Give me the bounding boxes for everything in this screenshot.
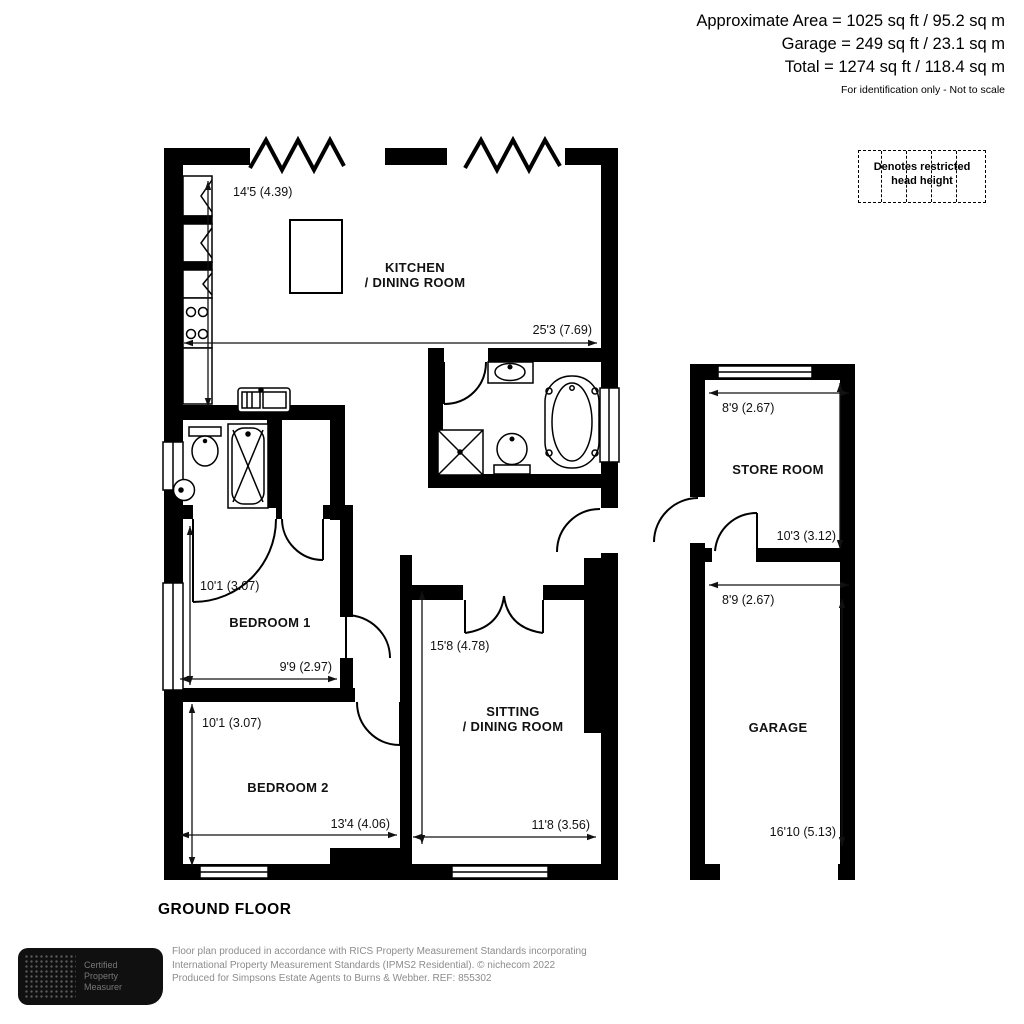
dim-kitchen-v: 14'5 (4.39) [233,185,292,199]
label-store-room: STORE ROOM [732,462,824,477]
label-bedroom1: BEDROOM 1 [229,615,310,630]
kitchen-sink [238,388,290,412]
bathroom-fixtures [438,362,599,475]
bathroom-sink [488,362,533,383]
shower [438,430,483,475]
dim-bedroom1-v: 10'1 (3.07) [200,579,259,593]
floor-title: GROUND FLOOR [158,901,291,919]
bath [228,424,268,508]
label-bedroom2: BEDROOM 2 [247,780,328,795]
attribution-line-1: Floor plan produced in accordance with R… [172,945,587,959]
bathtub [545,376,599,468]
dimension-arrows [180,181,849,866]
outbuilding-walls [690,364,855,880]
bathroom-toilet [494,434,530,475]
dim-bedroom2-v: 10'1 (3.07) [202,716,261,730]
dim-garage-h: 8'9 (2.67) [722,593,774,607]
floor-plan-page: Approximate Area = 1025 sq ft / 95.2 sq … [0,0,1024,1024]
certified-property-measurer-badge: Certified Property Measurer [18,948,163,1005]
dim-garage-v: 16'10 (5.13) [770,825,836,839]
toilet-cistern [189,427,221,436]
kitchen-fixtures [183,176,342,412]
dim-bedroom1-h: 9'9 (2.97) [280,660,332,674]
ensuite-fixtures [174,424,269,508]
dim-kitchen-h: 25'3 (7.69) [533,323,592,337]
label-sitting: SITTING [486,704,539,719]
label-kitchen: KITCHEN [385,260,445,275]
dim-bedroom2-h: 13'4 (4.06) [331,817,390,831]
badge-pattern [24,954,76,999]
attribution-line-2: International Property Measurement Stand… [172,959,587,973]
attribution: Floor plan produced in accordance with R… [172,945,587,986]
wash-basin [174,480,195,501]
kitchen-island [290,220,342,293]
badge-text: Certified Property Measurer [84,960,122,993]
dim-store-v: 10'3 (3.12) [777,529,836,543]
room-labels: KITCHEN / DINING ROOM BEDROOM 1 BEDROOM … [229,260,824,795]
label-kitchen-2: / DINING ROOM [365,275,466,290]
dim-sitting-v: 15'8 (4.78) [430,639,489,653]
dimension-arrowheads [180,181,849,866]
legend-text: Denotes restricted head height [859,151,985,188]
dim-store-h: 8'9 (2.67) [722,401,774,415]
main-house-walls [164,148,618,880]
label-garage: GARAGE [749,720,808,735]
label-sitting-2: / DINING ROOM [463,719,564,734]
attribution-line-3: Produced for Simpsons Estate Agents to B… [172,972,587,986]
dim-sitting-h: 11'8 (3.56) [532,818,590,832]
